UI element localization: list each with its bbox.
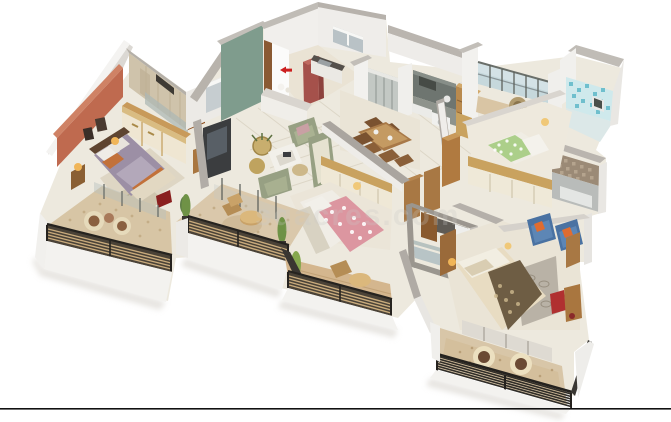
svg-text:sqacres.com: sqacres.com — [255, 199, 460, 232]
